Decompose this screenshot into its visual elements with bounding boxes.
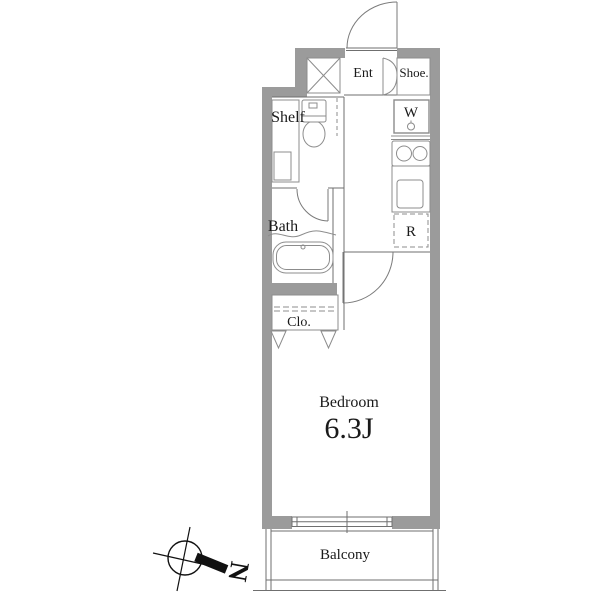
shoe-label: Shoe. [399, 65, 428, 80]
sink-counter [392, 166, 430, 212]
shelf-lower-box [274, 152, 291, 180]
closet-door-mark-right [321, 331, 336, 348]
wall-left [262, 87, 272, 529]
washer-label: W [404, 105, 419, 121]
toilet-flush-button [309, 103, 317, 108]
bath-label: Bath [268, 218, 298, 235]
wall-bottom-left [262, 516, 292, 529]
sink-basin [397, 180, 423, 208]
shelf-label: Shelf [271, 109, 305, 126]
fridge-label: R [406, 224, 416, 240]
bath-door-arc [297, 189, 328, 221]
compass: N [153, 527, 255, 591]
floorplan-svg: N Ent Shoe. W R Shelf Bath Clo. Bedroom … [0, 0, 600, 600]
bedroom-label: Bedroom [319, 394, 379, 411]
bedroom-size-label: 6.3J [324, 412, 374, 445]
shoe-door-arc-top [383, 58, 397, 75]
balcony-label: Balcony [320, 547, 370, 563]
bedroom-door-arc [343, 252, 393, 303]
washer-faucet-icon [408, 123, 415, 130]
toilet-bowl [303, 121, 325, 147]
floorplan: N Ent Shoe. W R Shelf Bath Clo. Bedroom … [0, 0, 600, 600]
entrance-label: Ent [353, 66, 373, 81]
stove-burner-left [397, 146, 412, 161]
entrance-door-arc [347, 2, 397, 48]
shoe-door-arc-bottom [383, 75, 397, 95]
compass-north-bar [194, 553, 228, 574]
compass-north-letter: N [222, 559, 255, 584]
stove-burner-right [413, 147, 427, 161]
closet-door-mark-left [271, 331, 286, 348]
wall-bath-bottom [262, 283, 337, 295]
closet-label: Clo. [287, 315, 311, 330]
wall-right [430, 48, 440, 529]
wall-bottom-right [392, 516, 440, 529]
